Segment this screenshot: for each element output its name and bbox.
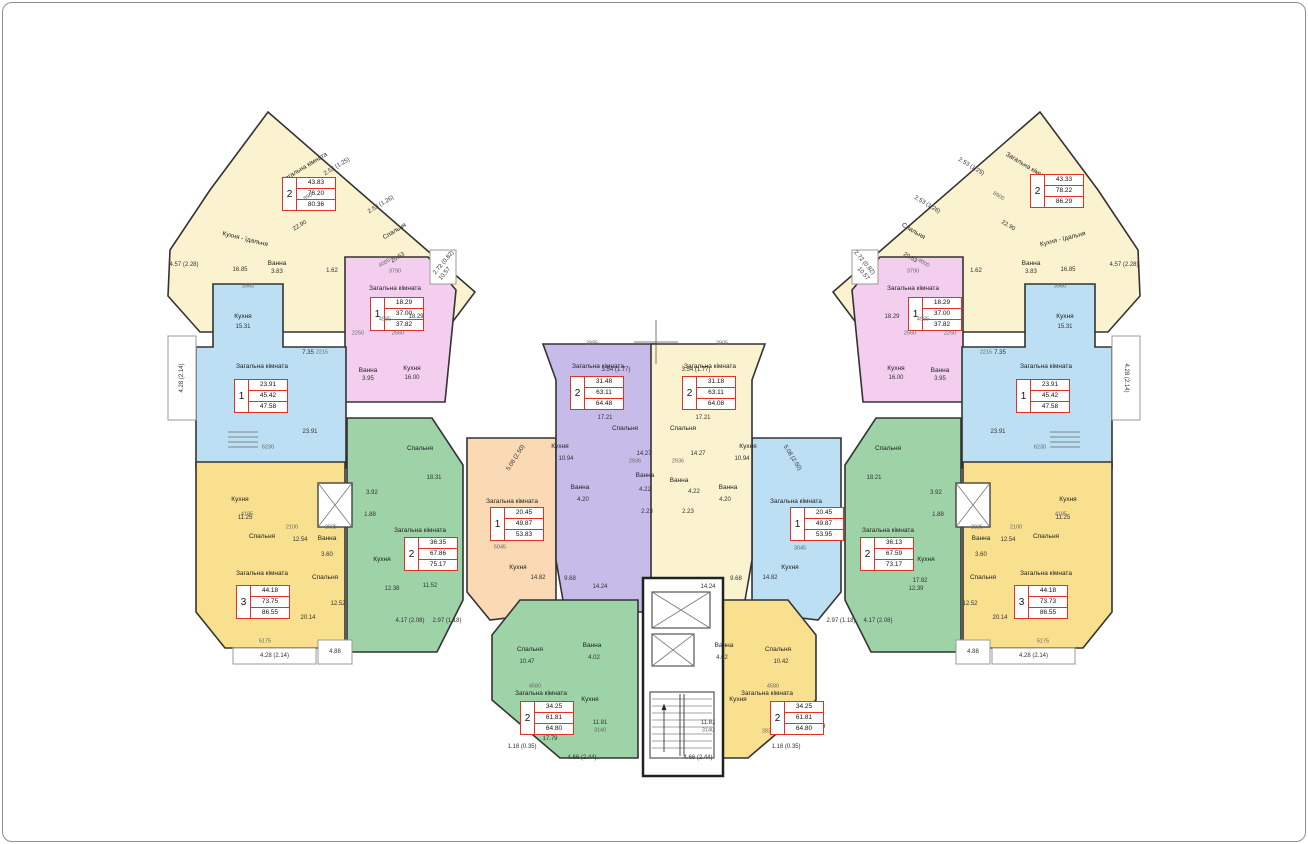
room-label: Кухня: [231, 497, 248, 504]
dim-label: 3.54 (1.77): [681, 367, 710, 373]
dim-label: 2100: [286, 525, 298, 531]
room-label: Кухня: [373, 557, 390, 564]
room-label: Спальня: [875, 446, 901, 453]
room-count: 2: [571, 377, 585, 409]
room-label: Кухня: [1056, 314, 1073, 321]
dim-label: 3.60: [975, 552, 987, 558]
living-area: 44.18: [1029, 586, 1067, 597]
room-label: Кухня: [234, 314, 251, 321]
dim-label: 18.21: [866, 475, 881, 481]
dim-label: 3960: [242, 284, 254, 290]
dim-label: 23.91: [302, 429, 317, 435]
total-area: 73.17: [875, 560, 913, 570]
room-label: Загальна кімната: [236, 364, 288, 371]
dim-label: 14.82: [762, 575, 777, 581]
living-area: 23.91: [249, 380, 287, 391]
dim-label: 3.92: [930, 490, 942, 496]
room-count: 1: [909, 298, 923, 330]
apartment-info-a8-cream-center: 231.1863.1164.08: [682, 376, 736, 410]
dim-label: 16.00: [404, 375, 419, 381]
room-count: 2: [1031, 175, 1045, 207]
room-label: Кухня - їдальня: [1040, 231, 1087, 249]
room-label: Загальна кімната: [394, 528, 446, 535]
apartment-area: 73.73: [1029, 597, 1067, 608]
dim-label: 6230: [262, 445, 274, 451]
dim-label: 4.02: [588, 655, 600, 661]
living-area: 20.45: [805, 508, 843, 519]
dim-label: 23.91: [990, 429, 1005, 435]
room-label: Спальня: [612, 426, 638, 433]
dim-label: 4.28 (2.14): [1123, 363, 1129, 392]
dim-label: 6230: [1034, 445, 1046, 451]
living-area: 18.29: [385, 298, 423, 309]
dim-label: 14.27: [636, 451, 651, 457]
living-area: 34.25: [535, 702, 573, 713]
room-label: Спальня: [1033, 534, 1059, 541]
room-label: Кухня: [1059, 497, 1076, 504]
dim-label: 22.90: [1000, 220, 1016, 233]
total-area: 86.29: [1045, 197, 1083, 207]
apartment-area: 45.42: [1031, 391, 1069, 402]
living-area: 31.18: [697, 377, 735, 388]
room-label: Кухня: [403, 366, 420, 373]
dim-label: 12.54: [292, 537, 307, 543]
dim-label: 20.14: [992, 615, 1007, 621]
total-area: 75.17: [419, 560, 457, 570]
dim-label: 18.29: [884, 314, 899, 320]
dim-label: 3.95: [362, 376, 374, 382]
apartment-info-a4-yellow-left: 344.1873.7586.55: [236, 585, 290, 619]
dim-label: 1.62: [970, 268, 982, 274]
dim-label: 2560: [392, 331, 404, 337]
total-area: 53.95: [805, 530, 843, 540]
dim-label: 9.68: [730, 576, 742, 582]
dim-label: 3960: [1054, 284, 1066, 290]
total-area: 47.58: [249, 402, 287, 412]
dim-label: 5175: [1037, 639, 1049, 645]
living-area: 18.29: [923, 298, 961, 309]
dim-label: 5.08 (2.50): [506, 444, 526, 472]
dim-label: 2.53 (1.26): [913, 195, 941, 215]
dim-label: 2.23: [682, 509, 694, 515]
dim-label: 2250: [352, 331, 364, 337]
room-label: Кухня: [509, 565, 526, 572]
dim-label: 4580: [529, 684, 541, 690]
dim-label: 2905: [716, 341, 728, 347]
dim-label: 16.85: [232, 267, 247, 273]
apartment-area: 49.87: [805, 519, 843, 530]
room-label: Ванна: [719, 485, 738, 492]
room-count: 2: [861, 538, 875, 570]
dim-label: 7.35: [994, 350, 1006, 356]
apartment-info-a7-purple-center: 231.4863.1164.48: [570, 376, 624, 410]
dim-label: 20.53: [390, 252, 406, 265]
dim-label: 1.88: [364, 512, 376, 518]
dim-label: 12.54: [1000, 537, 1015, 543]
apartment-area: 67.59: [875, 549, 913, 560]
dim-label: 10.94: [734, 456, 749, 462]
living-area: 23.91: [1031, 380, 1069, 391]
dim-label: 5175: [259, 639, 271, 645]
dim-label: 4.20: [719, 497, 731, 503]
apartment-area: 67.86: [419, 549, 457, 560]
dim-label: 3.54 (1.77): [601, 367, 630, 373]
room-label: Спальня: [407, 446, 433, 453]
dim-label: 17.21: [597, 415, 612, 421]
dim-label: 2215: [980, 350, 992, 356]
dim-label: 3790: [389, 269, 401, 275]
apartment-info-a12-pink-right: 118.2937.0037.82: [908, 297, 962, 331]
room-label: Спальня: [970, 575, 996, 582]
apartment-area: 73.75: [251, 597, 289, 608]
total-area: 64.48: [585, 399, 623, 409]
dim-label: 18.31: [426, 475, 441, 481]
room-label: Ванна: [972, 536, 991, 543]
room-count: 2: [683, 377, 697, 409]
dim-label: 2936: [672, 459, 684, 465]
dim-label: 3.92: [366, 490, 378, 496]
dim-label: 4.28 (2.14): [179, 363, 185, 392]
dim-label: 17.21: [695, 415, 710, 421]
dim-label: 1.18 (0.35): [771, 744, 800, 750]
dim-label: 4.66 (2.44): [567, 755, 596, 761]
living-area: 43.83: [297, 178, 335, 189]
dim-label: 17.82: [912, 578, 927, 584]
dim-label: 4.22: [688, 489, 700, 495]
room-count: 3: [237, 586, 251, 618]
dim-label: 16.00: [888, 375, 903, 381]
total-area: 80.36: [297, 200, 335, 210]
dim-label: 3.95: [934, 376, 946, 382]
apartment-info-a6-orange-center-left: 120.4549.8753.83: [490, 507, 544, 541]
room-label: Загальна кімната: [486, 499, 538, 506]
dim-label: 12.38: [384, 586, 399, 592]
room-label: Кухня: [739, 444, 756, 451]
dim-label: 2215: [316, 350, 328, 356]
dim-label: 11.81: [593, 720, 608, 726]
room-count: 2: [405, 538, 419, 570]
dim-label: 3045: [794, 546, 806, 552]
dim-label: 4.57 (2.28): [1109, 262, 1138, 268]
dim-label: 10.47: [519, 659, 534, 665]
dim-label: 12.52: [330, 601, 345, 607]
apartment-info-a16-yellow-bottom: 234.2561.8164.80: [770, 701, 824, 735]
apartment-area: 78.22: [1045, 186, 1083, 197]
dim-label: 8900: [991, 191, 1004, 202]
apartment-info-a14-wing-right: 243.3378.2286.29: [1030, 174, 1084, 208]
dim-label: 4.57 (2.28): [169, 262, 198, 268]
apartment-info-a3-blue-left: 123.9145.4247.58: [234, 379, 288, 413]
room-count: 1: [491, 508, 505, 540]
room-label: Ванна: [583, 643, 602, 650]
room-label: Ванна: [636, 473, 655, 480]
floor-plan-canvas: Загальна кімнатаСпальняКухня - їдальняВа…: [0, 0, 1308, 844]
dim-label: 4985: [917, 317, 929, 323]
living-area: 34.25: [785, 702, 823, 713]
dim-label: 2025: [971, 525, 983, 531]
apartment-area: 61.81: [785, 713, 823, 724]
dim-label: 9.68: [564, 576, 576, 582]
dim-label: 3.83: [271, 269, 283, 275]
dim-label: 2025: [325, 525, 337, 531]
room-label: Спальня: [765, 647, 791, 654]
apartment-area: 45.42: [249, 391, 287, 402]
total-area: 64.08: [697, 399, 735, 409]
room-label: Загальна кімната: [1020, 364, 1072, 371]
room-count: 1: [791, 508, 805, 540]
dim-label: 20.14: [300, 615, 315, 621]
dim-label: 12.52: [962, 601, 977, 607]
dim-label: 4.28 (2.14): [1019, 653, 1048, 659]
dim-label: 4985: [379, 317, 391, 323]
room-count: 2: [771, 702, 785, 734]
room-label: Загальна кімната: [1020, 571, 1072, 578]
room-label: Загальна кімната: [741, 691, 793, 698]
room-label: Ванна: [571, 485, 590, 492]
dim-label: 16.85: [1060, 267, 1075, 273]
apartment-area: 63.11: [585, 388, 623, 399]
room-label: Кухня - їдальня: [222, 231, 269, 249]
dim-label: 1.18 (0.35): [507, 744, 536, 750]
room-label: Кухня: [581, 697, 598, 704]
total-area: 47.58: [1031, 402, 1069, 412]
room-label: Спальня: [249, 534, 275, 541]
dim-label: 4.17 (2.08): [395, 618, 424, 624]
dim-label: 3.60: [321, 552, 333, 558]
dim-label: 10.42: [773, 659, 788, 665]
dim-label: 2560: [904, 331, 916, 337]
total-area: 86.55: [251, 608, 289, 618]
dim-label: 4580: [767, 684, 779, 690]
apartment-info-a15-green-bottom: 234.2561.8164.80: [520, 701, 574, 735]
room-label: Загальна кімната: [236, 571, 288, 578]
dim-label: 11.52: [423, 583, 438, 589]
room-label: Ванна: [1022, 261, 1041, 268]
dim-label: 4.02: [716, 655, 728, 661]
room-label: Спальня: [382, 222, 408, 241]
dim-label: 12.39: [908, 586, 923, 592]
dim-label: 2936: [629, 459, 641, 465]
dim-label: 15.31: [235, 324, 250, 330]
dim-label: 14.24: [592, 584, 607, 590]
room-label: Спальня: [670, 426, 696, 433]
dim-label: 4.22: [639, 487, 651, 493]
dim-label: 2.53 (1.25): [323, 157, 351, 177]
room-count: 2: [283, 178, 297, 210]
apartment-area: 63.11: [697, 388, 735, 399]
dim-label: 2.97 (1.18): [826, 618, 855, 624]
dim-label: 4185: [1055, 512, 1067, 518]
room-count: 1: [1017, 380, 1031, 412]
dim-label: 7.35: [302, 350, 314, 356]
dim-label: 15.31: [1057, 324, 1072, 330]
dim-label: 3140: [594, 728, 606, 734]
room-label: Спальня: [517, 647, 543, 654]
room-label: Кухня: [917, 557, 934, 564]
dim-label: 3140: [702, 728, 714, 734]
room-label: Ванна: [318, 536, 337, 543]
room-label: Кухня: [781, 565, 798, 572]
apartment-info-a10-green-right: 236.1367.5973.17: [860, 537, 914, 571]
dim-label: 17.79: [542, 736, 557, 742]
dim-label: 3.83: [1025, 269, 1037, 275]
dim-label: 14.27: [690, 451, 705, 457]
dim-label: 2.97 (1.18): [432, 618, 461, 624]
apartment-info-a11-yellow-right: 344.1873.7386.55: [1014, 585, 1068, 619]
total-area: 53.83: [505, 530, 543, 540]
dim-label: 2.53 (1.25): [957, 157, 985, 177]
apartment-info-a9-blue-center-right: 120.4549.8753.95: [790, 507, 844, 541]
living-area: 43.33: [1045, 175, 1083, 186]
living-area: 36.13: [875, 538, 913, 549]
room-label: Ванна: [715, 643, 734, 650]
dim-label: 4.28 (2.14): [260, 653, 289, 659]
room-label: Загальна кімната: [770, 499, 822, 506]
room-label: Ванна: [931, 368, 950, 375]
room-label: Спальня: [312, 575, 338, 582]
living-area: 44.18: [251, 586, 289, 597]
dim-label: 4.17 (2.08): [863, 618, 892, 624]
dim-label: 5.08 (2.50): [782, 444, 802, 472]
dim-label: 2.53 (1.26): [367, 195, 395, 215]
living-area: 20.45: [505, 508, 543, 519]
room-label: Ванна: [670, 478, 689, 485]
total-area: 64.80: [785, 724, 823, 734]
dim-label: 4.20: [577, 497, 589, 503]
dim-label: 4.88: [967, 649, 979, 655]
room-label: Кухня: [729, 697, 746, 704]
labels-layer: Загальна кімнатаСпальняКухня - їдальняВа…: [0, 0, 1308, 844]
dim-label: 5045: [494, 545, 506, 551]
dim-label: 10.94: [558, 456, 573, 462]
dim-label: 1.88: [932, 512, 944, 518]
room-label: Загальна кімната: [369, 286, 421, 293]
room-label: Загальна кімната: [515, 691, 567, 698]
dim-label: 2250: [944, 331, 956, 337]
dim-label: 4.88: [329, 649, 341, 655]
room-label: Загальна кімната: [862, 528, 914, 535]
room-label: Кухня: [551, 444, 568, 451]
room-label: Спальня: [900, 222, 926, 241]
total-area: 86.55: [1029, 608, 1067, 618]
dim-label: 2100: [1010, 525, 1022, 531]
dim-label: 3790: [907, 269, 919, 275]
room-count: 2: [521, 702, 535, 734]
total-area: 64.80: [535, 724, 573, 734]
room-label: Ванна: [268, 261, 287, 268]
apartment-area: 61.81: [535, 713, 573, 724]
room-count: 1: [371, 298, 385, 330]
dim-label: 4185: [241, 512, 253, 518]
apartment-info-a13-blue-right: 123.9145.4247.58: [1016, 379, 1070, 413]
dim-label: 2.23: [641, 509, 653, 515]
dim-label: 18.29: [408, 314, 423, 320]
dim-label: 14.82: [530, 575, 545, 581]
apartment-area: 49.87: [505, 519, 543, 530]
room-count: 3: [1015, 586, 1029, 618]
living-area: 31.48: [585, 377, 623, 388]
dim-label: 2995: [586, 341, 598, 347]
dim-label: 1.62: [326, 268, 338, 274]
dim-label: 22.90: [292, 220, 308, 233]
room-label: Загальна кімната: [887, 286, 939, 293]
living-area: 36.35: [419, 538, 457, 549]
apartment-info-a5-green-left: 236.3567.8675.17: [404, 537, 458, 571]
room-label: Ванна: [359, 368, 378, 375]
dim-label: 11.81: [701, 720, 716, 726]
room-label: Кухня: [887, 366, 904, 373]
room-count: 1: [235, 380, 249, 412]
dim-label: 14.24: [700, 584, 715, 590]
dim-label: 4.66 (2.44): [683, 755, 712, 761]
